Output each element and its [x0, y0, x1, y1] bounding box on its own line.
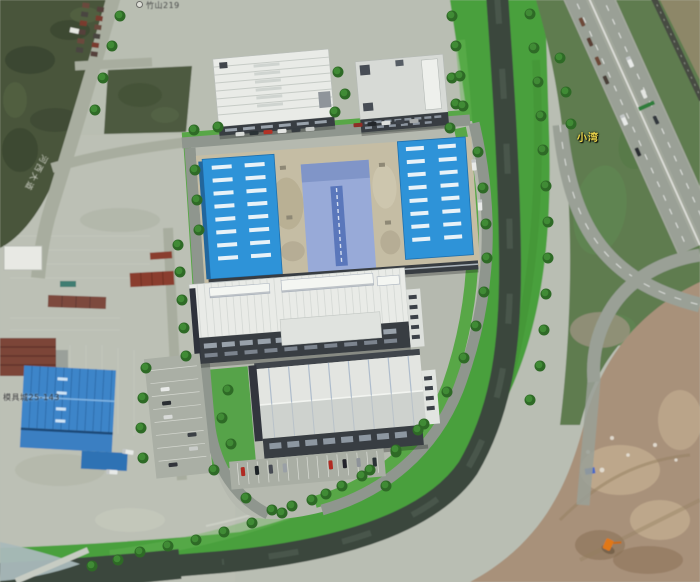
poi-marker-icon: [136, 1, 143, 8]
center-hall: [301, 160, 377, 276]
white-shed: [4, 246, 42, 270]
warehouse-d: [248, 348, 442, 464]
warehouse-a: [213, 49, 336, 139]
blue-wing-west: [198, 154, 282, 279]
factory-complex: [196, 137, 481, 292]
blue-wing-east: [397, 137, 473, 259]
aerial-satellite-view: 小湾 竹山219 模具城25-143 河西大道: [0, 0, 700, 582]
scene-canvas: [0, 0, 700, 582]
